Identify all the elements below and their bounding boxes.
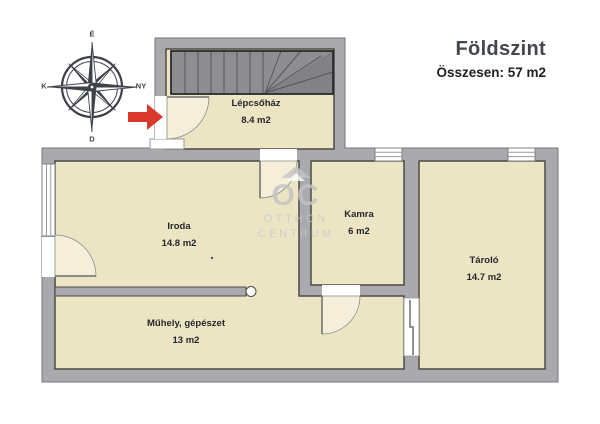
compass-label-left: K <box>41 82 46 91</box>
door-tarolo <box>404 298 419 356</box>
staircase-icon <box>171 51 333 94</box>
compass-label-right: NY <box>136 82 146 91</box>
window-iroda-left <box>42 164 55 236</box>
room-label-tarolo: Tároló 14.7 m2 <box>467 255 502 283</box>
room-name: Tároló <box>467 255 502 266</box>
page-title: Földszint <box>436 38 546 61</box>
window-tarolo-top <box>508 148 535 161</box>
entrance-sill <box>150 139 184 149</box>
room-area: 13 m2 <box>147 335 225 346</box>
compass-rose-icon <box>47 42 137 132</box>
room-area: 6 m2 <box>344 226 374 237</box>
wall-end-post <box>246 287 256 297</box>
plan-speck <box>211 257 213 259</box>
room-label-lepcsohaz: Lépcsőház 8.4 m2 <box>231 98 280 126</box>
room-area: 14.8 m2 <box>162 238 197 249</box>
room-label-kamra: Kamra 6 m2 <box>344 209 374 237</box>
room-name: Műhely, gépészet <box>147 318 225 329</box>
room-area: 8.4 m2 <box>231 115 280 126</box>
room-label-iroda: Iroda 14.8 m2 <box>162 221 197 249</box>
room-area: 14.7 m2 <box>467 272 502 283</box>
floor-plan-page: É NY D K Földszint Összesen: 57 m2 Lépcs… <box>0 0 600 424</box>
partition-wall-iroda-muhely <box>55 287 246 296</box>
room-name: Lépcsőház <box>231 98 280 109</box>
room-name: Iroda <box>162 221 197 232</box>
compass-label-north: É <box>89 30 94 39</box>
room-name: Kamra <box>344 209 374 220</box>
window-kamra-top <box>375 148 402 161</box>
plan-header: Földszint Összesen: 57 m2 <box>436 38 546 80</box>
compass-label-south: D <box>89 135 94 144</box>
page-subtitle: Összesen: 57 m2 <box>436 65 546 80</box>
room-label-muhely: Műhely, gépészet 13 m2 <box>147 318 225 346</box>
